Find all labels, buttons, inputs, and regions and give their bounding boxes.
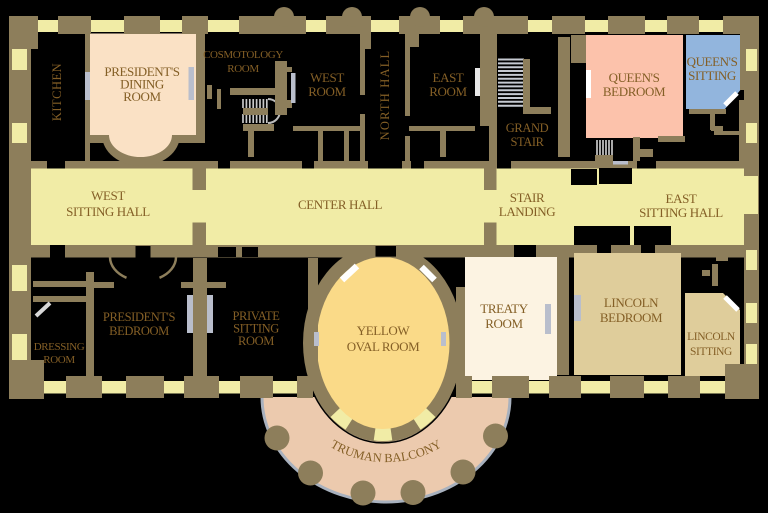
svg-text:QUEEN'S: QUEEN'S bbox=[609, 70, 660, 85]
svg-text:QUEEN'S: QUEEN'S bbox=[687, 54, 738, 69]
svg-text:EAST: EAST bbox=[433, 70, 464, 85]
svg-text:BEDROOM: BEDROOM bbox=[600, 310, 663, 325]
svg-text:WEST: WEST bbox=[310, 70, 344, 85]
svg-text:LANDING: LANDING bbox=[499, 204, 555, 219]
svg-text:KITCHEN: KITCHEN bbox=[50, 63, 64, 121]
svg-text:ROOM: ROOM bbox=[485, 316, 523, 331]
svg-text:OVAL ROOM: OVAL ROOM bbox=[347, 339, 420, 354]
svg-text:ROOM: ROOM bbox=[429, 84, 467, 99]
svg-text:PRESIDENT'S: PRESIDENT'S bbox=[103, 310, 176, 324]
svg-text:LINCOLN: LINCOLN bbox=[687, 331, 736, 343]
svg-text:SITTING HALL: SITTING HALL bbox=[639, 205, 723, 220]
svg-text:SITTING: SITTING bbox=[688, 68, 736, 83]
svg-text:ROOM: ROOM bbox=[238, 334, 274, 348]
svg-text:ROOM: ROOM bbox=[308, 84, 346, 99]
svg-text:WEST: WEST bbox=[91, 188, 125, 203]
svg-text:ROOM: ROOM bbox=[43, 354, 75, 366]
svg-text:TREATY: TREATY bbox=[480, 301, 528, 316]
svg-text:YELLOW: YELLOW bbox=[357, 323, 411, 338]
svg-text:SITTING HALL: SITTING HALL bbox=[66, 204, 150, 219]
svg-text:CENTER HALL: CENTER HALL bbox=[298, 197, 383, 212]
svg-text:BEDROOM: BEDROOM bbox=[603, 84, 666, 99]
svg-text:ROOM: ROOM bbox=[123, 89, 161, 104]
svg-text:STAIR: STAIR bbox=[510, 190, 545, 205]
svg-text:DRESSING: DRESSING bbox=[34, 341, 85, 353]
svg-text:COSMOTOLOGY: COSMOTOLOGY bbox=[203, 49, 283, 61]
svg-text:STAIR: STAIR bbox=[510, 135, 544, 149]
svg-text:GRAND: GRAND bbox=[506, 121, 549, 135]
svg-text:BEDROOM: BEDROOM bbox=[109, 324, 169, 338]
svg-text:NORTH HALL: NORTH HALL bbox=[378, 50, 392, 141]
svg-text:LINCOLN: LINCOLN bbox=[604, 295, 659, 310]
svg-text:ROOM: ROOM bbox=[227, 63, 259, 75]
svg-text:EAST: EAST bbox=[666, 191, 697, 206]
svg-text:SITTING: SITTING bbox=[690, 346, 732, 358]
